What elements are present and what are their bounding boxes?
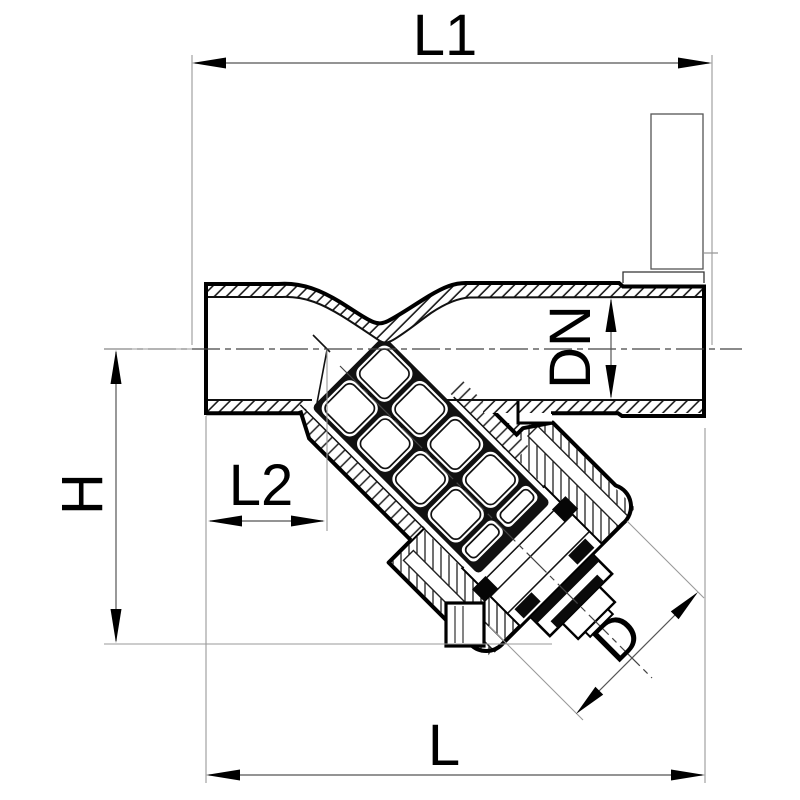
svg-text:L: L: [428, 713, 460, 778]
svg-text:H: H: [50, 473, 115, 515]
svg-text:L2: L2: [229, 453, 294, 518]
svg-text:L1: L1: [413, 3, 478, 68]
svg-text:DN: DN: [538, 305, 603, 389]
